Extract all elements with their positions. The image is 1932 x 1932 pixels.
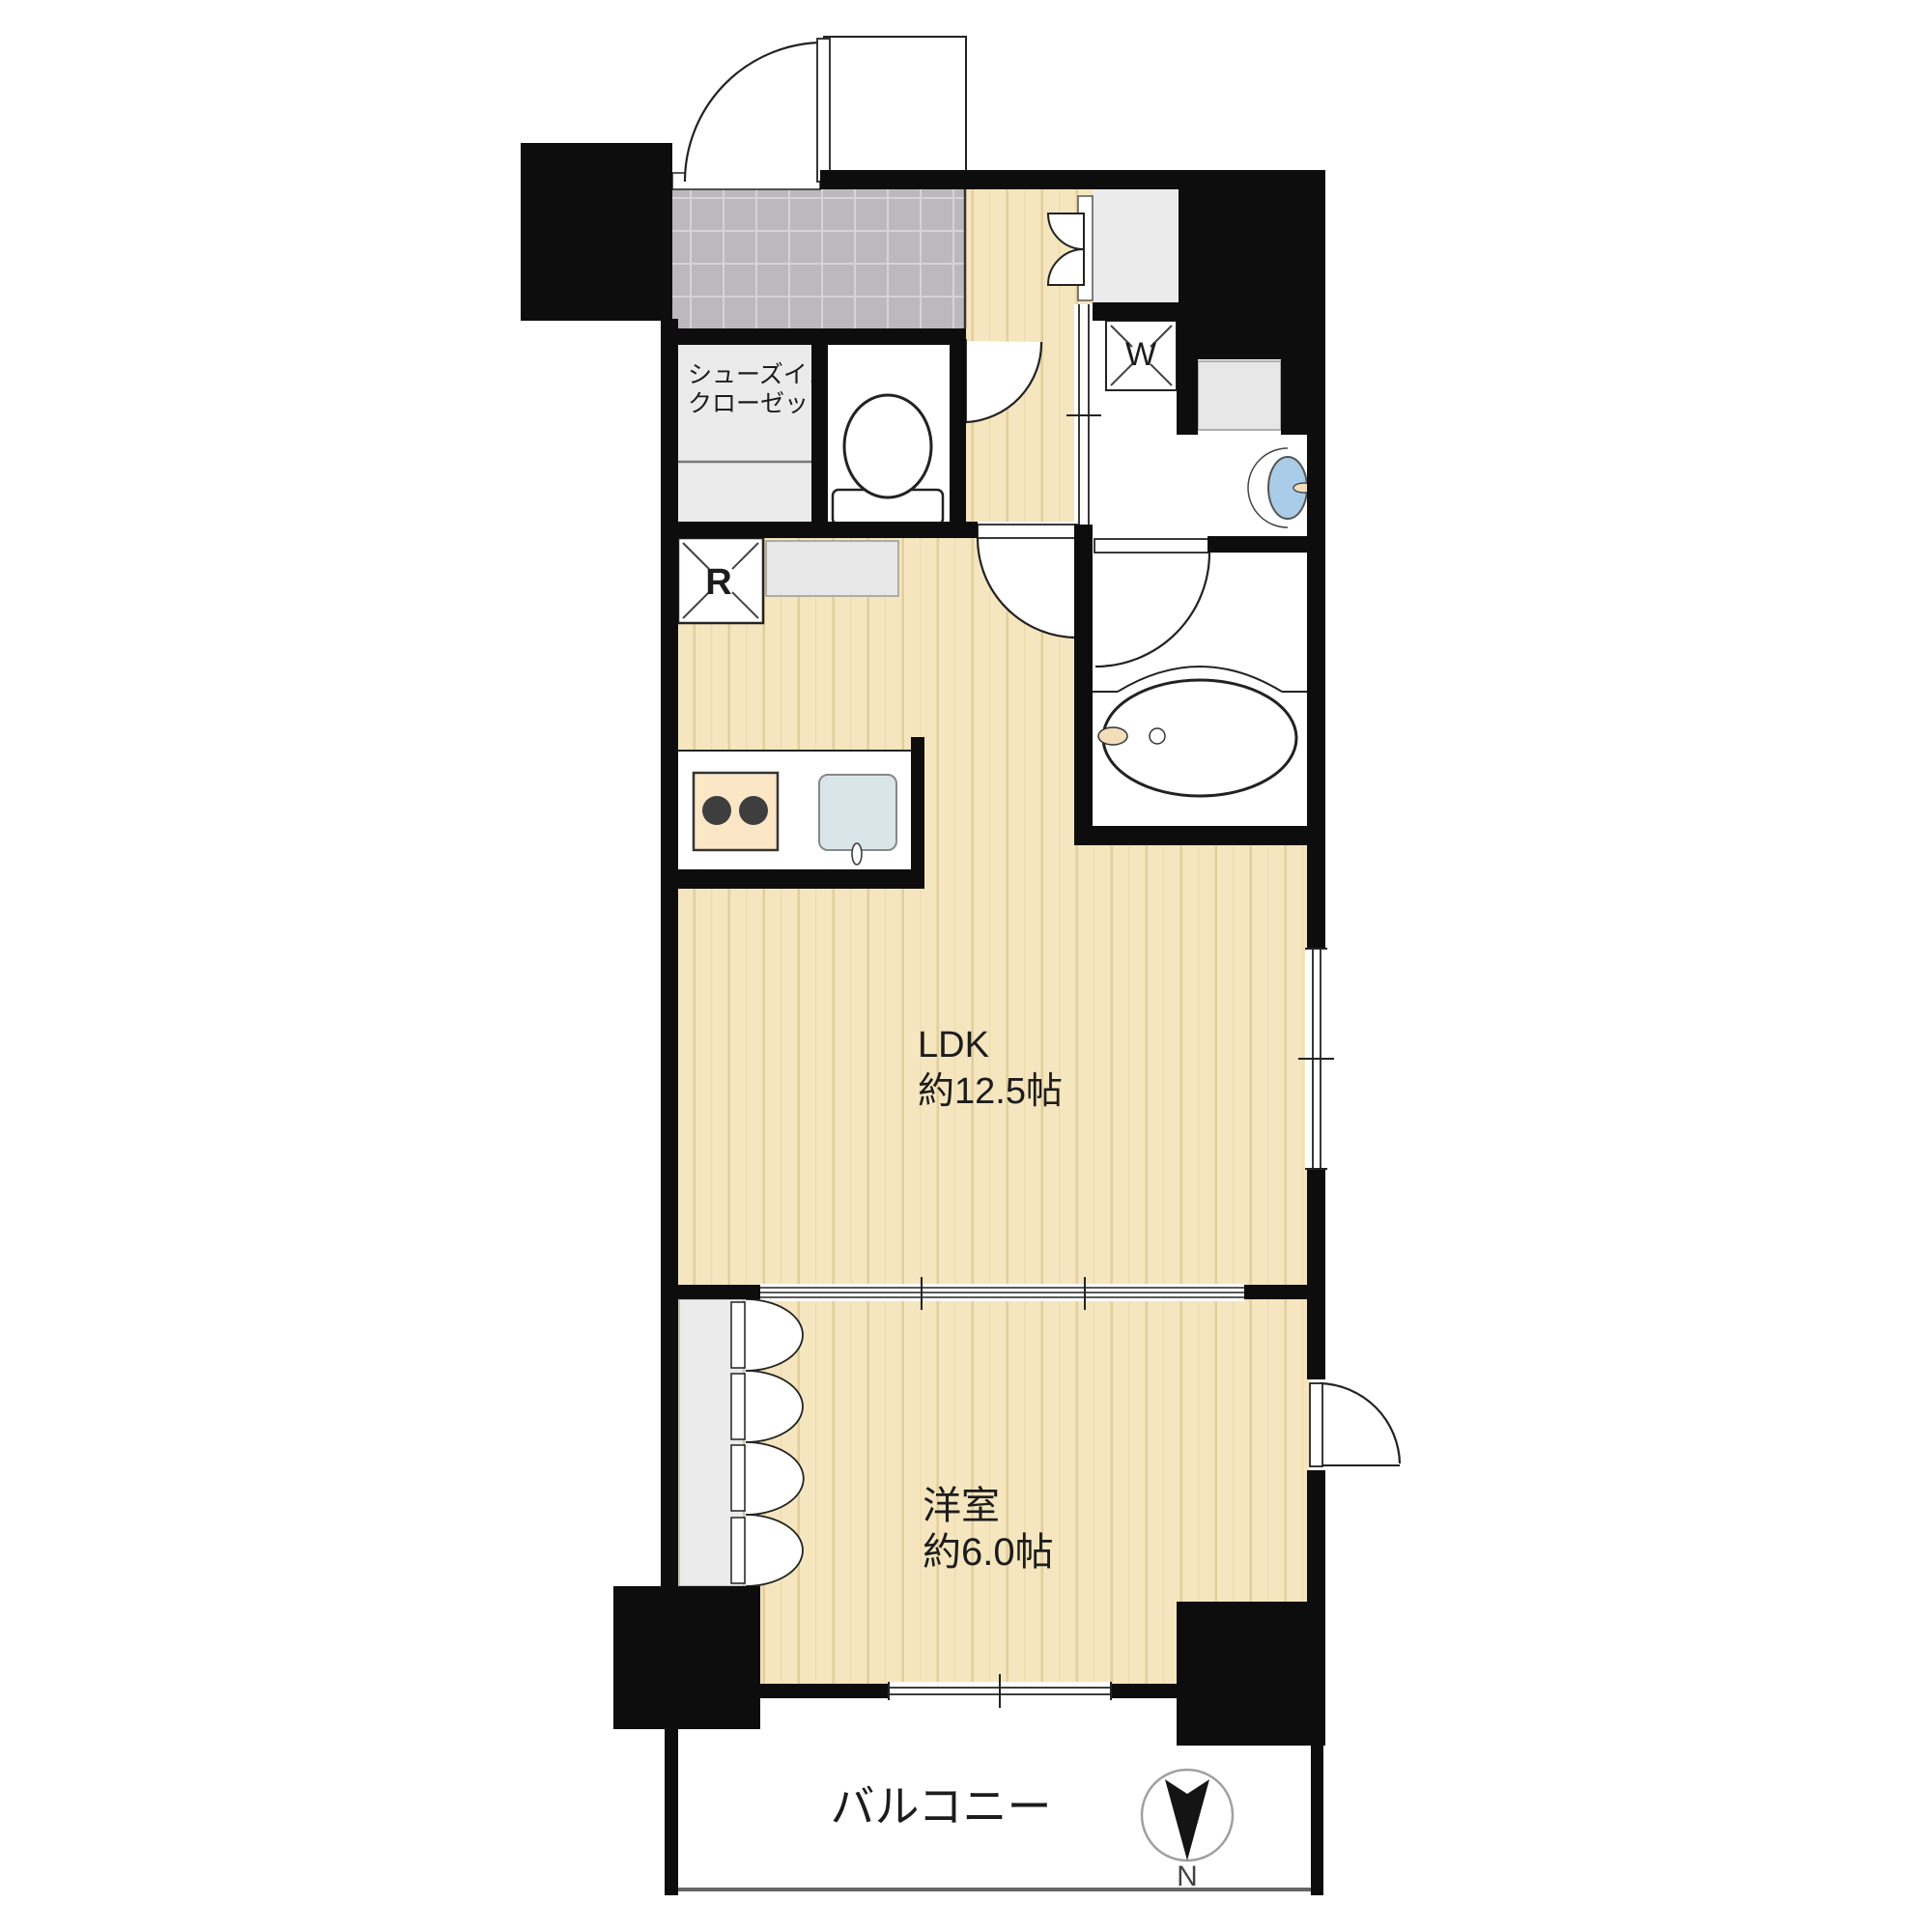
bedroom-size: 約6.0帖	[923, 1531, 1054, 1574]
balcony-wall-left	[665, 1729, 678, 1895]
washer-label: W	[1125, 336, 1156, 373]
bathtub	[1103, 680, 1296, 796]
wall-right-upper	[1307, 321, 1325, 949]
wall-left	[661, 319, 678, 1586]
pillar-top-right	[1179, 170, 1325, 321]
kitchen-sink-faucet	[852, 843, 862, 865]
kitchen-counter	[678, 751, 911, 869]
tile-entry-floor	[672, 189, 965, 328]
bedroom-name: 洋室	[923, 1485, 1000, 1527]
entrance-door-leaf	[817, 39, 830, 182]
refrigerator-box: R	[678, 538, 763, 623]
compass-north-label: N	[1177, 1861, 1198, 1892]
refrigerator-label: R	[705, 562, 731, 603]
stove-burner-left	[702, 796, 731, 825]
kitchen-storage-counter	[766, 541, 898, 596]
bathtub-drain	[1150, 728, 1165, 744]
stove-burner-right	[739, 796, 768, 825]
hallway-closet-floor	[1093, 189, 1179, 302]
wall-right-middle	[1307, 1169, 1325, 1379]
entrance-door-swing-area	[685, 43, 824, 182]
shoe-closet-label-line1: シューズイン	[688, 361, 832, 388]
shoe-closet-room: シューズイン クローゼット	[678, 345, 833, 522]
bathroom	[1093, 536, 1307, 826]
bathroom-door-leaf	[1094, 539, 1209, 553]
floor-plan-svg: シューズイン クローゼット R	[0, 0, 1932, 1932]
entrance-door	[672, 37, 966, 189]
wall-right-lower	[1307, 1470, 1325, 1602]
ldk-size: 約12.5帖	[918, 1071, 1063, 1112]
pillar-top-left	[521, 143, 672, 321]
ldk-name: LDK	[918, 1025, 989, 1065]
balcony-wall-right	[1311, 1746, 1323, 1895]
pillar-bottom-left	[613, 1586, 760, 1729]
floor-plan-page: シューズイン クローゼット R	[0, 0, 1932, 1932]
ldk-door-leaf	[978, 525, 1077, 538]
wall-top	[820, 170, 1179, 189]
bedroom-door-leaf	[1310, 1383, 1322, 1466]
toilet-bowl	[844, 395, 931, 497]
powder-shelf	[1198, 361, 1281, 430]
bedroom-door	[1310, 1383, 1400, 1466]
kitchen-sink	[819, 775, 896, 850]
bedroom-door-swing-area	[1317, 1383, 1400, 1465]
pillar-bottom-right	[1177, 1602, 1325, 1746]
balcony-label: バルコニー	[830, 1781, 1051, 1832]
bathtub-faucet	[1098, 727, 1127, 745]
entrance-porch	[824, 37, 966, 173]
shoe-closet-label-line2: クローゼット	[688, 390, 833, 417]
compass: N	[1142, 1770, 1233, 1892]
